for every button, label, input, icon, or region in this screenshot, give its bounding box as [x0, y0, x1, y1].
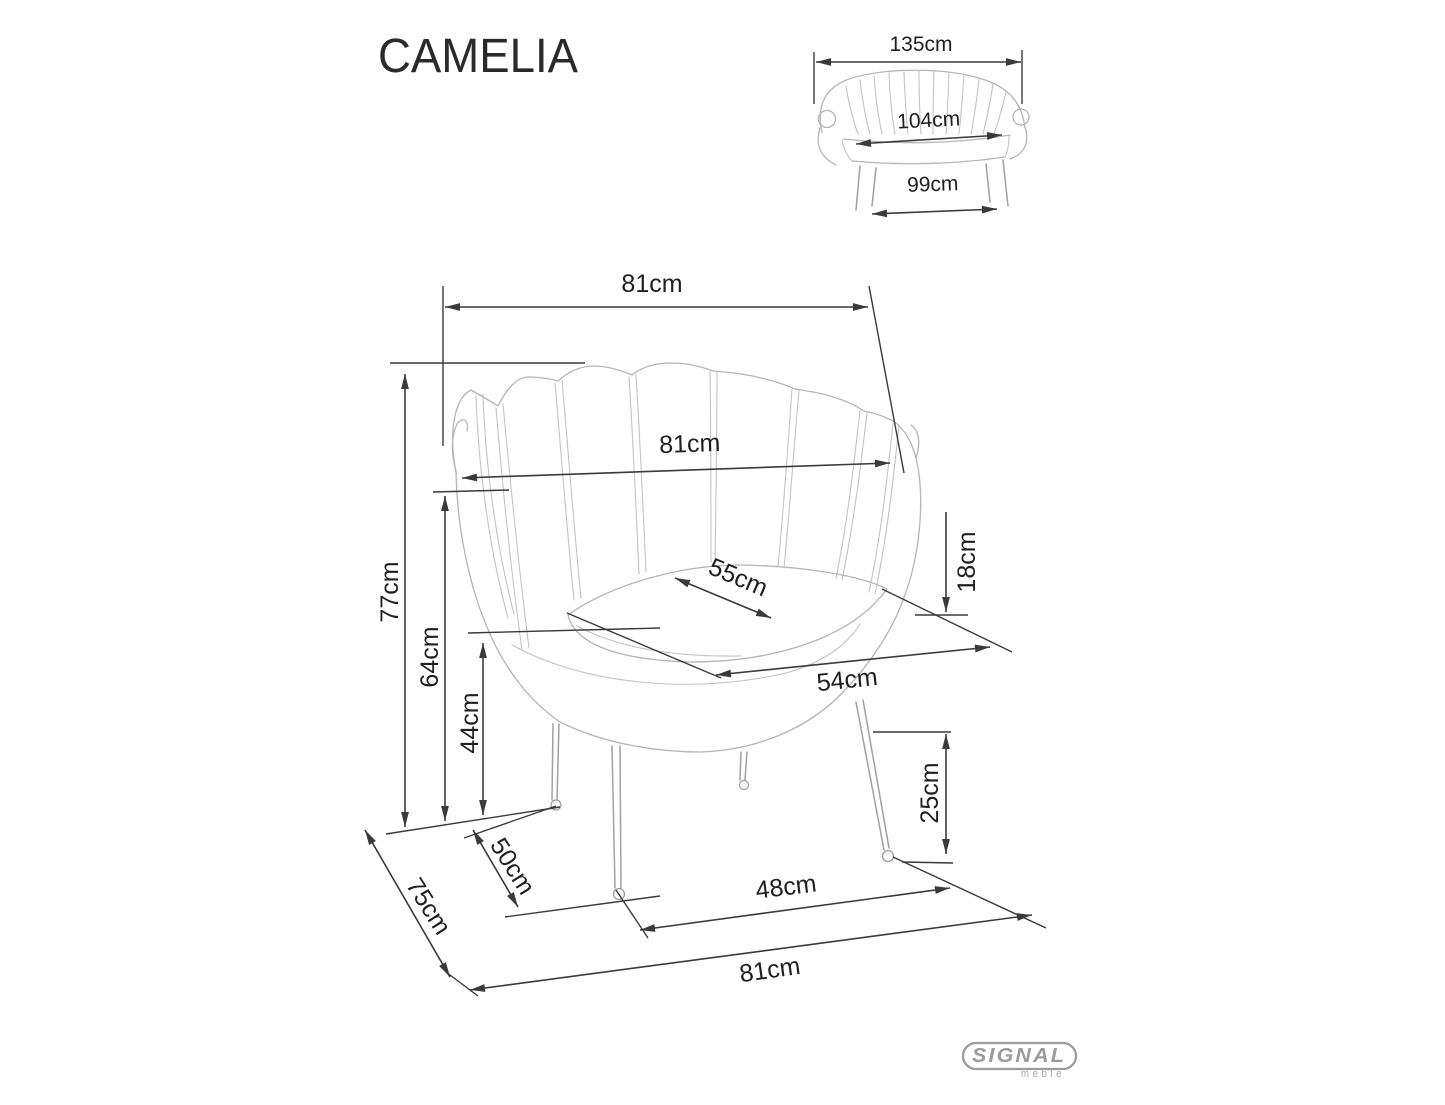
reference-line — [433, 490, 509, 492]
front-right-foot — [883, 851, 894, 862]
overall-width-label: 81cm — [621, 270, 682, 298]
leg-depth-span-label: 50cm — [484, 833, 540, 900]
sofa-skirt-edge — [852, 157, 1005, 164]
chair-dimensions: 81cm 81cm 77cm 64cm 44cm 55cm 54cm 18cm … — [365, 270, 1046, 996]
extension-line — [869, 286, 904, 473]
sofa-leg-span-dimension — [872, 209, 997, 214]
logo-sub-text: meble — [1021, 1068, 1065, 1080]
front-left-leg — [620, 746, 621, 888]
technical-drawing-page: CAMELIA 135cm 104cm — [0, 0, 1445, 1105]
front-left-leg — [612, 746, 615, 888]
armrest-height-label: 64cm — [416, 626, 444, 687]
reference-line — [902, 862, 953, 863]
sofa-leg — [986, 164, 990, 202]
brand-logo: SIGNAL meble — [963, 1043, 1076, 1080]
backrest-width-label: 81cm — [659, 429, 721, 459]
extension-line — [567, 613, 721, 678]
sofa-dimensions: 135cm 104cm 99cm — [814, 33, 1022, 214]
extension-line — [446, 972, 478, 996]
back-right-leg — [740, 752, 741, 780]
left-arm-curl — [452, 420, 467, 472]
extension-line — [505, 896, 660, 917]
sofa-left-arm-scroll — [819, 111, 836, 128]
drawing-canvas: CAMELIA 135cm 104cm — [0, 0, 1445, 1105]
reference-line — [468, 628, 660, 633]
sofa-width-label: 135cm — [889, 33, 952, 56]
sofa-right-arm-edge — [1010, 127, 1027, 159]
sofa-leg — [856, 166, 860, 210]
front-right-leg — [856, 702, 884, 850]
sofa-leg-span-label: 99cm — [907, 172, 959, 197]
back-right-leg — [745, 752, 747, 780]
sofa-leg — [1003, 160, 1008, 206]
front-right-leg — [863, 700, 889, 848]
back-left-leg — [557, 724, 559, 800]
back-left-leg — [552, 724, 553, 800]
extension-line — [464, 806, 556, 838]
chair-body-outline — [456, 458, 921, 752]
backrest-width-dimension — [462, 463, 890, 478]
sofa-seat-width-label: 104cm — [897, 107, 961, 133]
front-leg-span-label: 48cm — [754, 869, 818, 904]
base-width-label: 81cm — [738, 952, 802, 988]
extension-line — [882, 589, 1012, 652]
sofa-leg — [872, 168, 876, 206]
back-right-foot — [740, 781, 749, 790]
cushion-thickness-label: 18cm — [953, 531, 981, 592]
seat-depth-label: 54cm — [815, 663, 879, 697]
total-height-label: 77cm — [376, 561, 404, 622]
leg-height-label: 25cm — [916, 762, 944, 823]
extension-line — [616, 890, 648, 938]
sofa-left-arm-edge — [818, 128, 836, 165]
page-title: CAMELIA — [378, 30, 578, 83]
floor-baseline — [386, 807, 560, 834]
logo-brand-text: SIGNAL — [972, 1045, 1066, 1067]
seat-height-label: 44cm — [456, 692, 484, 753]
